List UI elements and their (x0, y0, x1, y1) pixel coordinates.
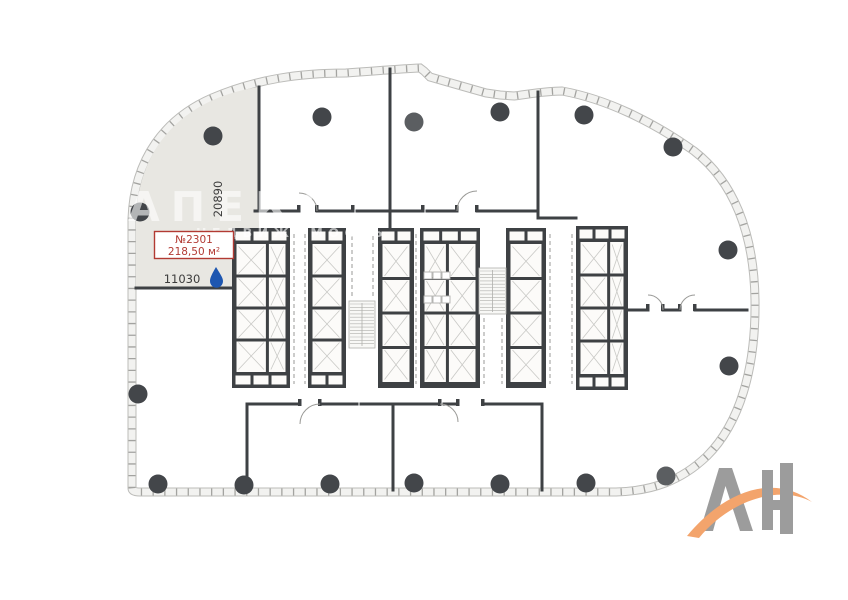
structural-column (491, 103, 510, 122)
structural-column (235, 476, 254, 495)
door-swing-arc (457, 191, 477, 211)
structural-column (313, 108, 332, 127)
core-bank (576, 226, 628, 390)
unit-area-label: 218,50 м² (168, 246, 220, 258)
structural-column (204, 127, 223, 146)
wc-fixture (442, 296, 450, 303)
structural-column (491, 475, 510, 494)
structural-column (577, 474, 596, 493)
wc-fixture (433, 272, 441, 279)
stairwell (349, 301, 375, 348)
structural-column (664, 138, 683, 157)
logo-letter-h (762, 463, 793, 534)
structural-column (321, 475, 340, 494)
floor-plan-svg: АПЕКС НЕДВИЖИМОСТЬ 20890 11030 №2301 218… (0, 0, 848, 600)
floor-plan-page: АПЕКС НЕДВИЖИМОСТЬ 20890 11030 №2301 218… (0, 0, 848, 600)
structural-column (129, 385, 148, 404)
door-jamb (646, 304, 650, 311)
door-swing-arc (300, 404, 320, 424)
structural-column (405, 474, 424, 493)
core-bank (378, 228, 414, 388)
door-swing-arc (648, 295, 663, 310)
wc-fixture (424, 296, 432, 303)
door-jamb (351, 205, 355, 212)
door-swing-arc (680, 295, 695, 310)
stairwell (479, 268, 506, 314)
core-bank (308, 228, 346, 388)
door-swing-arc (440, 404, 458, 422)
unit-number: №2301 (175, 234, 213, 246)
unit-label[interactable]: №2301 218,50 м² (155, 232, 234, 259)
wc-fixture (442, 272, 450, 279)
structural-column (719, 241, 738, 260)
core-bank (232, 228, 290, 388)
dimension-width-label: 11030 (164, 272, 201, 286)
door-jamb (438, 399, 442, 406)
core-bank (506, 228, 546, 388)
structural-column (405, 113, 424, 132)
structural-column (149, 475, 168, 494)
door-jamb (475, 205, 479, 212)
agency-logo: АН (687, 463, 812, 538)
door-jamb (693, 304, 697, 311)
door-jamb (481, 399, 485, 406)
door-jamb (298, 399, 302, 406)
door-jamb (421, 205, 425, 212)
watermark-line1: АПЕКС (128, 183, 341, 231)
core-bank (420, 228, 480, 388)
wc-fixture (424, 272, 432, 279)
structural-column (657, 467, 676, 486)
dimension-height-label: 20890 (211, 181, 225, 218)
wc-fixture (433, 296, 441, 303)
structural-column (575, 106, 594, 125)
door-jamb (318, 399, 322, 406)
structural-column (720, 357, 739, 376)
door-jamb (456, 399, 460, 406)
